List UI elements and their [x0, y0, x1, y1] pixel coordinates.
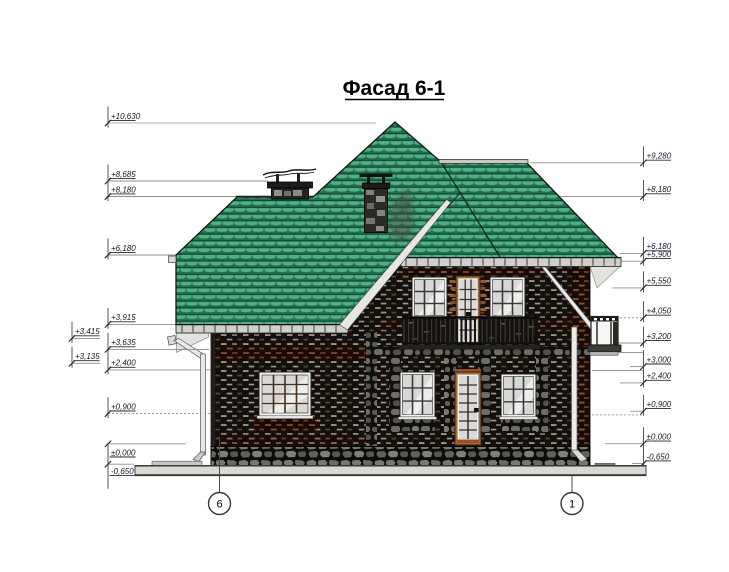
svg-text:+4,050: +4,050	[647, 307, 672, 316]
svg-text:+3,200: +3,200	[647, 332, 672, 341]
svg-text:-0,650: -0,650	[647, 452, 670, 461]
svg-text:+5,550: +5,550	[647, 277, 672, 286]
svg-text:+3,635: +3,635	[111, 338, 136, 347]
svg-text:±0,000: ±0,000	[111, 448, 136, 457]
svg-text:+0,900: +0,900	[111, 402, 136, 411]
svg-text:+8,685: +8,685	[111, 170, 136, 179]
svg-text:+6,180: +6,180	[111, 244, 136, 253]
svg-text:±0,000: ±0,000	[647, 433, 672, 442]
svg-text:Фасад 6-1: Фасад 6-1	[343, 77, 446, 100]
svg-text:+3,135: +3,135	[75, 352, 100, 361]
svg-text:+3,415: +3,415	[75, 327, 100, 336]
svg-text:-0,650: -0,650	[111, 467, 134, 476]
svg-text:+0,900: +0,900	[647, 400, 672, 409]
svg-text:1: 1	[569, 499, 575, 511]
svg-text:+5,900: +5,900	[647, 250, 672, 259]
svg-text:+8,180: +8,180	[647, 185, 672, 194]
svg-text:+2,400: +2,400	[647, 372, 672, 381]
svg-text:+3,915: +3,915	[111, 313, 136, 322]
svg-text:+10,630: +10,630	[111, 112, 141, 121]
svg-text:6: 6	[216, 499, 222, 511]
svg-text:+8,180: +8,180	[111, 185, 136, 194]
svg-text:+9,280: +9,280	[647, 152, 672, 161]
svg-text:+3,000: +3,000	[647, 355, 672, 364]
svg-text:+2,400: +2,400	[111, 359, 136, 368]
